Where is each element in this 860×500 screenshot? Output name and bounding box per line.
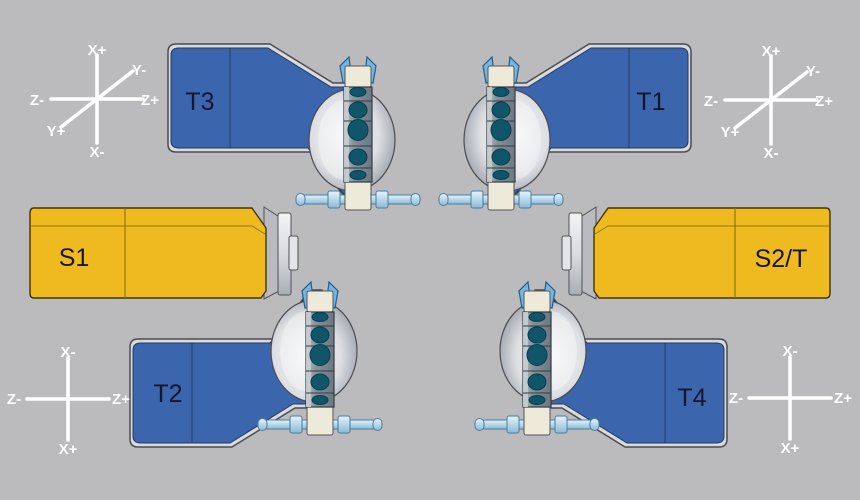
machine-configuration-diagram: T3 T1 T2 T4 S1 S2/T X+ X- Z- Z+ Y- Y+ X+… — [0, 0, 860, 500]
axis-label-diag-up: Y- — [806, 63, 820, 80]
spindle-s2t-label: S2/T — [755, 245, 808, 273]
axis-label-left: Z- — [7, 391, 21, 408]
axis-label-left: Z- — [30, 92, 44, 109]
spindle-s1-label: S1 — [59, 244, 90, 272]
axis-label-up: X+ — [88, 42, 107, 59]
turret-t4: T4 — [475, 282, 727, 447]
axis-cross — [749, 357, 831, 439]
axis-label-down: X- — [90, 144, 105, 161]
axis-cross — [27, 358, 109, 440]
axis-label-up: X+ — [762, 43, 781, 60]
axis-label-left: Z- — [704, 93, 718, 110]
spindle-s1: S1 — [30, 207, 298, 299]
axis-label-diag-up: Y- — [132, 62, 146, 79]
turret-t2-label: T2 — [153, 380, 182, 408]
spindle-s2t: S2/T — [562, 207, 830, 299]
axis-label-left: Z- — [729, 390, 743, 407]
turret-t4-label: T4 — [677, 384, 706, 412]
axis-indicator-bottom-left: X- X+ Z- Z+ — [7, 344, 130, 458]
axis-label-right: Z+ — [112, 391, 130, 408]
axis-indicator-top-left: X+ X- Z- Z+ Y- Y+ — [30, 42, 159, 161]
turret-t2: T2 — [130, 282, 382, 447]
axis-label-right: Z+ — [834, 390, 852, 407]
axis-label-up: X- — [61, 344, 76, 361]
axis-label-diag-down: Y+ — [47, 123, 66, 140]
axis-indicator-top-right: X+ X- Z- Z+ Y- Y+ — [704, 43, 833, 162]
axis-indicator-bottom-right: X- X+ Z- Z+ — [729, 343, 852, 457]
axis-label-right: Z+ — [815, 93, 833, 110]
diagram-canvas: T3 T1 T2 T4 S1 S2/T X+ X- Z- Z+ Y- Y+ X+… — [0, 0, 860, 500]
axis-label-diag-down: Y+ — [721, 124, 740, 141]
axis-label-right: Z+ — [141, 92, 159, 109]
turret-t3-label: T3 — [185, 88, 214, 116]
axis-label-down: X- — [764, 145, 779, 162]
axis-label-up: X- — [783, 343, 798, 360]
turret-t1-label: T1 — [636, 88, 665, 116]
turret-t1: T1 — [439, 44, 691, 210]
axis-label-down: X+ — [59, 441, 78, 458]
axis-label-down: X+ — [781, 440, 800, 457]
turret-t3: T3 — [168, 44, 420, 210]
